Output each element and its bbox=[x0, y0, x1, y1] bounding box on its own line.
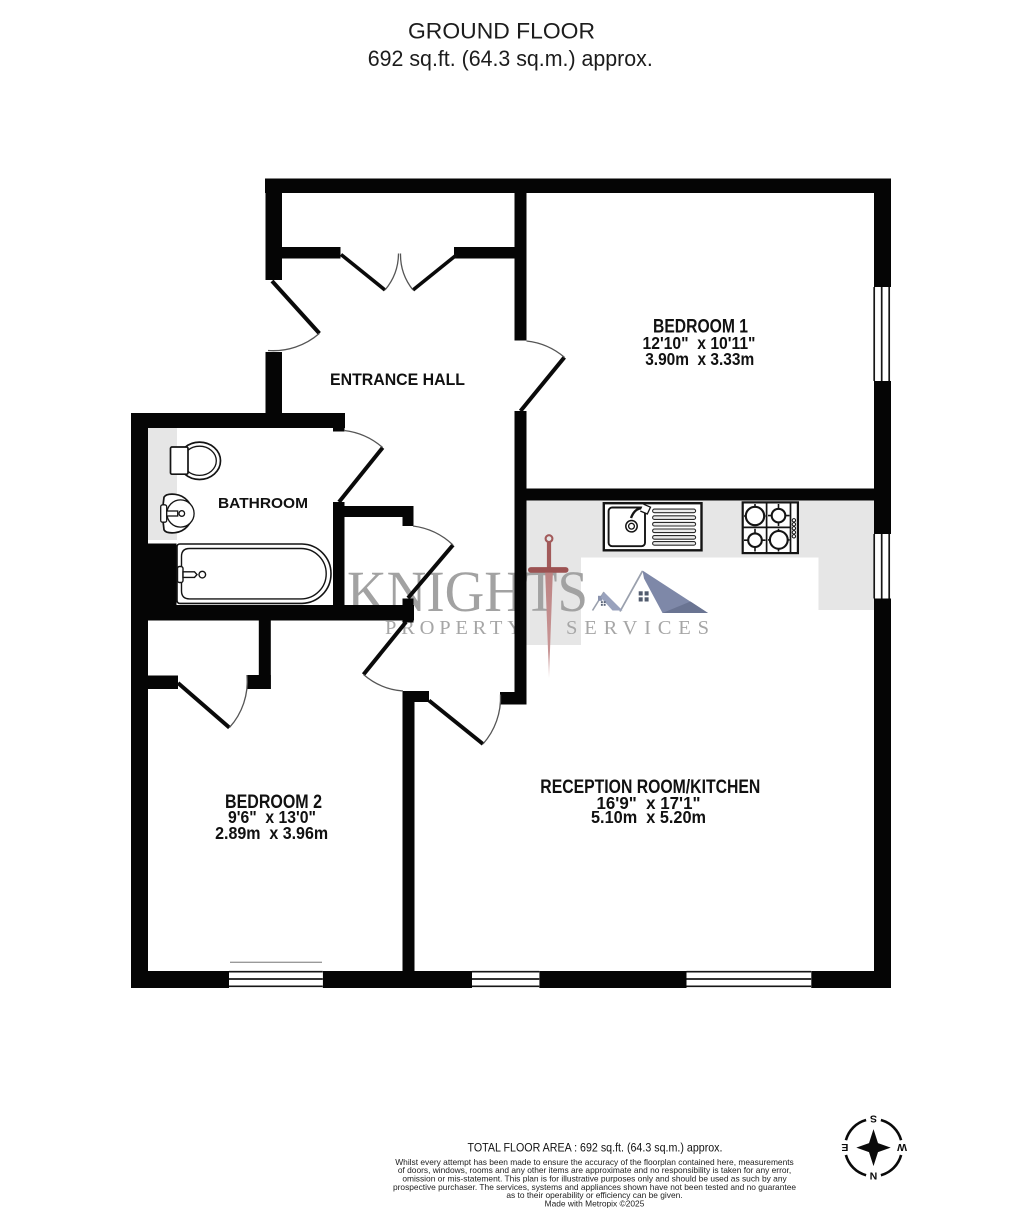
svg-text:N: N bbox=[870, 1170, 878, 1182]
svg-text:W: W bbox=[897, 1141, 907, 1153]
svg-text:GROUND FLOOR: GROUND FLOOR bbox=[408, 19, 595, 44]
svg-text:E: E bbox=[841, 1141, 848, 1153]
svg-text:5.10m x 5.20m: 5.10m x 5.20m bbox=[591, 807, 706, 827]
svg-text:BATHROOM: BATHROOM bbox=[218, 495, 308, 512]
svg-text:S: S bbox=[870, 1112, 877, 1124]
svg-text:3.90m x 3.33m: 3.90m x 3.33m bbox=[645, 349, 754, 369]
svg-text:ENTRANCE HALL: ENTRANCE HALL bbox=[330, 371, 465, 389]
svg-text:2.89m x 3.96m: 2.89m x 3.96m bbox=[215, 823, 328, 843]
svg-text:692 sq.ft. (64.3 sq.m.) approx: 692 sq.ft. (64.3 sq.m.) approx. bbox=[368, 46, 653, 71]
svg-text:TOTAL FLOOR AREA : 692 sq.ft.: TOTAL FLOOR AREA : 692 sq.ft. (64.3 sq.m… bbox=[468, 1141, 723, 1155]
svg-text:Made with Metropix ©2025: Made with Metropix ©2025 bbox=[545, 1198, 645, 1208]
